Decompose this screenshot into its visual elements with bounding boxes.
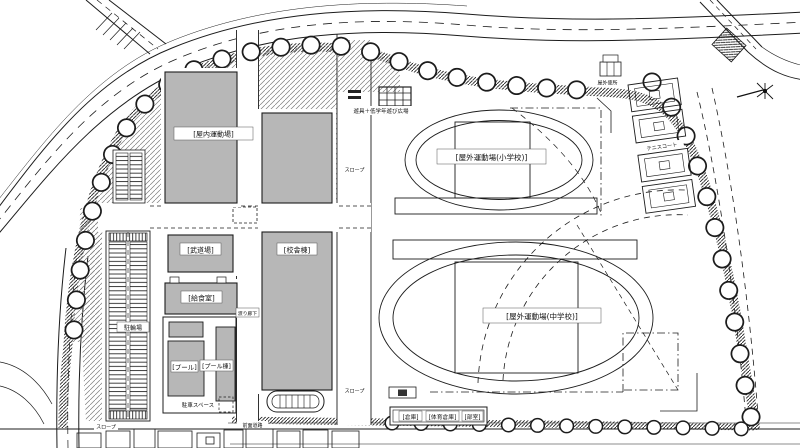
branch-road-topright-curve [748,52,800,80]
house [246,429,273,448]
site-plan-canvas: テニスコート 屋外便所 [0,0,800,448]
branch-road-topleft-dash [97,0,158,49]
label-school-building: [校舎棟] [284,246,311,255]
branch-road-topright-curve2 [762,47,800,66]
label-gym-storage: [体育倉庫] [429,413,457,421]
label-slope-3: スロープ [96,425,116,431]
kitchen-tab-1 [170,277,179,283]
label-outdoor-toilet: 屋外便所 [597,80,617,87]
label-martial-arts: [武道場] [187,246,214,255]
platform-box-mark [398,390,407,397]
label-pool-building: [プール棟] [202,363,231,371]
label-bicycle-parking: 駐輪場 [124,324,142,332]
house [303,430,328,448]
rack-structure-outer [267,391,324,412]
house [277,431,300,448]
house [158,431,192,448]
building-school-upper [262,113,332,203]
label-slope-1: スロープ [345,168,365,174]
outdoor-toilet-group: 屋外便所 [594,55,621,87]
north-arrow-symbol [737,83,773,99]
house [134,429,155,448]
label-slope-2: スロープ [345,389,365,395]
sprinkler-arc-outer [478,190,685,383]
building-school-lower [262,232,332,390]
branch-road-topleft2 [109,0,166,44]
fence-corner-se [660,373,697,411]
sprinkler-arc-inner [503,215,688,380]
label-pool: [プール] [172,364,197,372]
label-club-rooms: [部室] [464,413,480,421]
label-play-plaza: 遊具＋低学年遊び広場 [353,107,409,115]
label-covered-walkway: 渡り廊下 [238,310,257,317]
outdoor-toilet-building [600,62,621,76]
radius-line-dashed [577,225,678,390]
house [77,433,101,448]
label-field-elementary: [屋外運動場(小学校)] [456,152,528,162]
fence-dashdot-square [430,333,678,392]
label-kitchen: [給食室] [188,294,215,303]
label-field-junior: [屋外運動場(中学校)] [506,311,578,321]
outdoor-toilet-annex [603,55,618,62]
house [106,431,130,448]
shelter-col2 [130,153,142,200]
corner-curve1 [0,362,52,404]
tennis-court-4 [642,180,695,214]
bench-icon [348,90,361,93]
house [332,431,359,448]
house-small-mark [206,437,214,444]
field-strip-2 [393,240,637,259]
field-strip-1 [395,198,597,214]
label-indoor-gym: [屋内運動場] [193,130,234,139]
bench-icon-2 [348,96,361,99]
label-front-road: 前面道路 [242,422,262,429]
branch-road-topleft1 [86,0,150,54]
shelter-col1 [116,153,128,200]
kitchen-tab-2 [217,277,226,283]
house [224,430,243,448]
house [197,433,220,448]
pool-small [169,322,203,337]
neighboring-houses [77,429,359,448]
fence-corner-ne [597,98,611,133]
label-storage: [倉庫] [402,413,418,421]
corner-curve2 [0,386,44,424]
site-plan-page: テニスコート 屋外便所 [0,0,800,448]
label-parking-space: 駐車スペース [182,401,214,409]
tennis-court-3 [638,148,691,182]
